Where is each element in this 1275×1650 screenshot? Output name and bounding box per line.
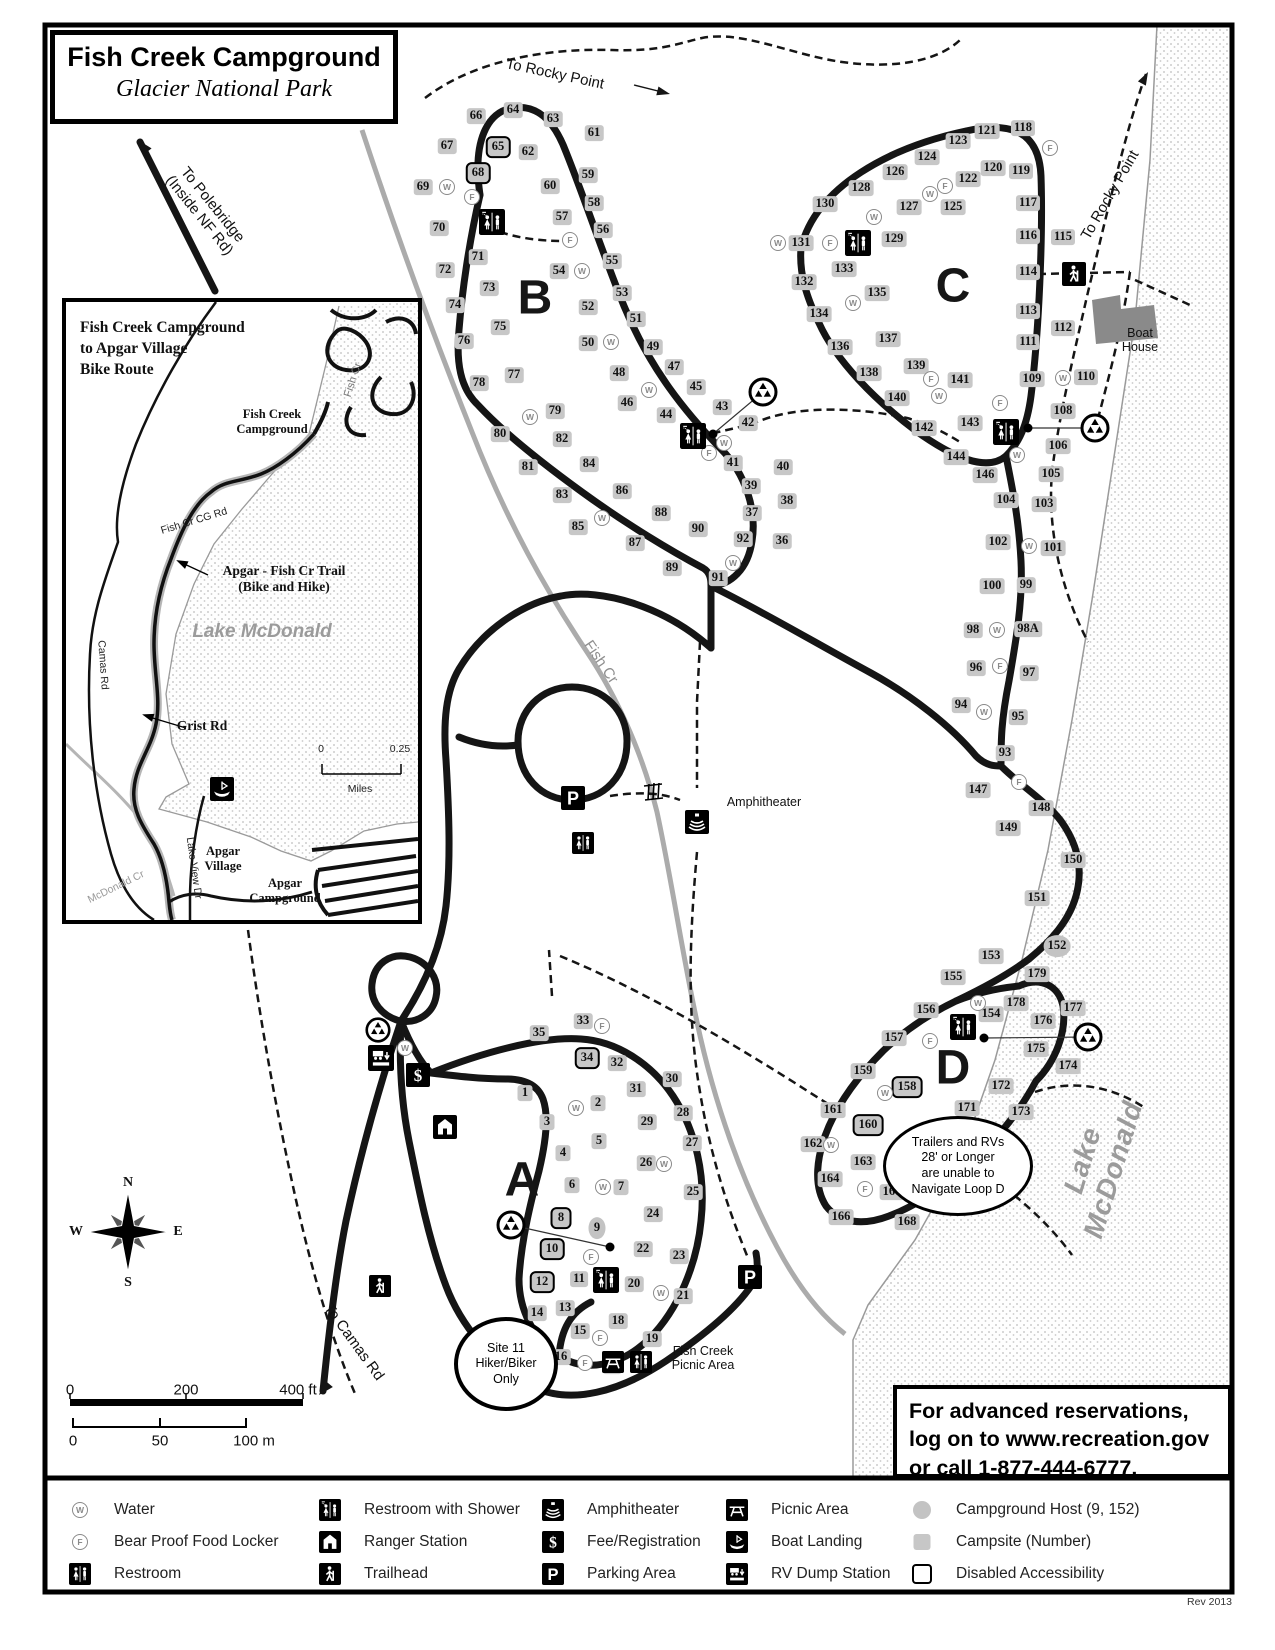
inset-label: 0.25 xyxy=(390,743,410,755)
scalebar-meters xyxy=(73,1418,246,1428)
inset-bike-route-map: Fish Creek Campground to Apgar Village B… xyxy=(62,298,422,924)
reservation-line3: or call 1-877-444-6777. xyxy=(909,1454,1228,1482)
inset-label: Miles xyxy=(348,783,373,795)
reservation-box: For advanced reservations, log on to www… xyxy=(893,1385,1232,1478)
inset-label: Fish Creek Campground xyxy=(236,407,307,437)
campground-map-page: 6664636167656268695960585756707172555473… xyxy=(0,0,1275,1650)
inset-label: 0 xyxy=(318,743,324,755)
reservation-line2: log on to www.recreation.gov xyxy=(909,1425,1228,1453)
fish-creek-path xyxy=(362,130,845,1334)
inset-label: Lake McDonald xyxy=(192,621,331,643)
inset-label: Grist Rd xyxy=(177,718,228,734)
inset-drawing xyxy=(66,302,418,920)
reservation-line1: For advanced reservations, xyxy=(909,1397,1228,1425)
inset-label: Apgar Campground xyxy=(249,876,320,906)
map-subtitle: Glacier National Park xyxy=(55,76,393,103)
boat-icon xyxy=(210,777,234,801)
inset-label: Apgar - Fish Cr Trail (Bike and Hike) xyxy=(223,563,346,595)
revision-label: Rev 2013 xyxy=(1187,1596,1232,1608)
note-site11: Site 11 Hiker/Biker Only xyxy=(454,1317,558,1411)
note-trailers: Trailers and RVs 28' or Longer are unabl… xyxy=(883,1116,1033,1216)
map-title: Fish Creek Campground xyxy=(55,42,393,73)
compass-rose xyxy=(88,1192,168,1272)
scalebar-feet xyxy=(70,1393,303,1406)
title-box: Fish Creek Campground Glacier National P… xyxy=(50,30,398,124)
inset-label: Fish Creek Campground to Apgar Village B… xyxy=(80,318,245,381)
bridge-icon xyxy=(644,783,663,800)
inset-label: Apgar Village xyxy=(204,844,241,874)
